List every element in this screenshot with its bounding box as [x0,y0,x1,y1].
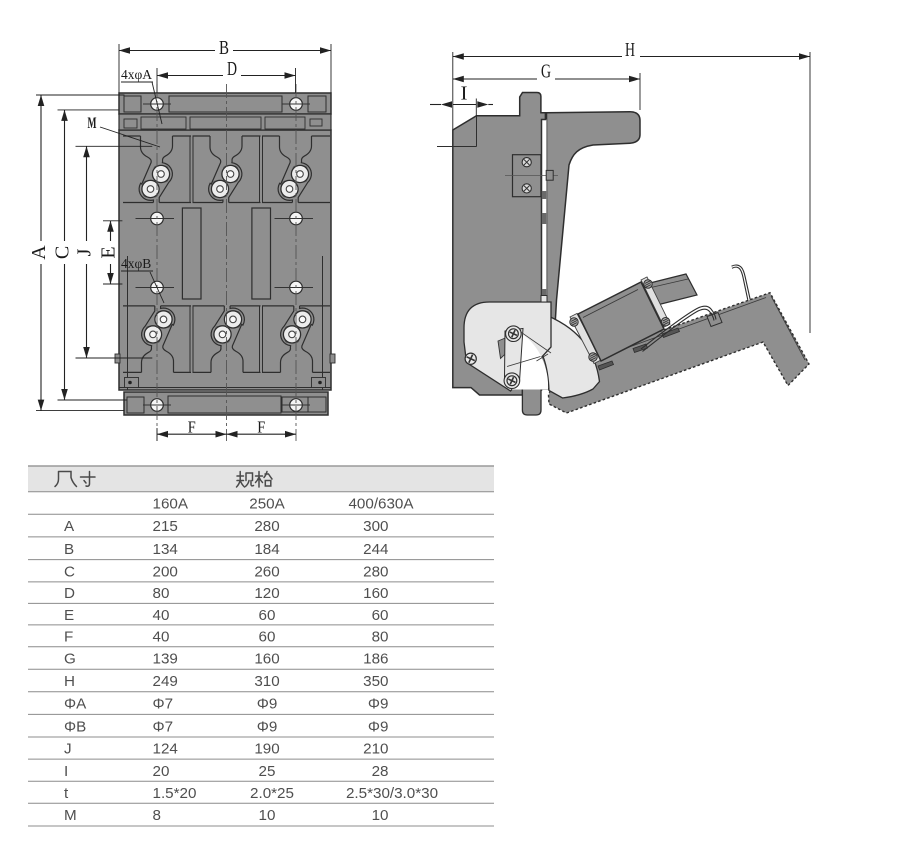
svg-text:40: 40 [153,607,170,624]
svg-text:J: J [74,248,96,256]
svg-text:E: E [98,246,120,258]
svg-text:40: 40 [153,628,170,645]
svg-text:Φ9: Φ9 [368,696,389,713]
svg-text:160A: 160A [153,496,189,513]
svg-text:2.0*25: 2.0*25 [250,785,294,802]
svg-text:139: 139 [153,651,178,668]
svg-text:2.5*30/3.0*30: 2.5*30/3.0*30 [346,785,438,802]
svg-text:80: 80 [372,628,389,645]
svg-text:J: J [64,741,72,758]
svg-text:F: F [188,418,196,437]
svg-text:124: 124 [153,741,178,758]
svg-text:400/630A: 400/630A [348,496,414,513]
svg-text:210: 210 [363,741,388,758]
svg-text:M: M [64,807,77,824]
svg-text:Φ9: Φ9 [257,696,278,713]
svg-text:260: 260 [254,563,279,580]
svg-text:C: C [52,246,74,259]
svg-text:300: 300 [363,518,388,535]
svg-text:A: A [28,245,50,260]
svg-text:1.5*20: 1.5*20 [153,785,197,802]
svg-text:280: 280 [363,563,388,580]
svg-text:Φ9: Φ9 [368,718,389,735]
svg-text:C: C [64,563,75,580]
svg-text:B: B [219,37,229,59]
svg-text:F: F [257,418,265,437]
svg-text:60: 60 [259,628,276,645]
svg-text:190: 190 [254,741,279,758]
svg-text:4xφB: 4xφB [121,256,151,271]
svg-text:80: 80 [153,585,170,602]
svg-text:t: t [64,785,69,802]
svg-text:Φ7: Φ7 [153,718,174,735]
svg-text:160: 160 [254,651,279,668]
svg-text:D: D [64,585,75,602]
svg-text:Φ9: Φ9 [257,718,278,735]
svg-text:ΦB: ΦB [64,718,86,735]
svg-text:D: D [227,58,237,80]
svg-text:280: 280 [254,518,279,535]
svg-text:244: 244 [363,541,388,558]
svg-text:A: A [64,518,75,535]
svg-text:350: 350 [363,673,388,690]
svg-text:10: 10 [259,807,276,824]
svg-text:250A: 250A [249,496,285,513]
svg-text:134: 134 [153,541,178,558]
svg-text:B: B [64,541,74,558]
svg-text:215: 215 [153,518,178,535]
svg-text:25: 25 [259,763,276,780]
svg-text:249: 249 [153,673,178,690]
svg-text:10: 10 [372,807,389,824]
svg-text:H: H [64,673,75,690]
svg-text:186: 186 [363,651,388,668]
svg-text:E: E [64,607,74,624]
svg-text:20: 20 [153,763,170,780]
svg-text:G: G [541,61,551,83]
svg-text:8: 8 [153,807,161,824]
svg-text:28: 28 [372,763,389,780]
svg-text:200: 200 [153,563,178,580]
svg-text:M: M [88,115,97,132]
svg-text:4xφA: 4xφA [121,67,152,82]
svg-text:310: 310 [254,673,279,690]
svg-text:I: I [64,763,68,780]
svg-text:ΦA: ΦA [64,696,87,713]
svg-text:H: H [625,39,635,61]
svg-text:120: 120 [254,585,279,602]
svg-text:Φ7: Φ7 [153,696,174,713]
svg-text:G: G [64,651,76,668]
svg-text:I: I [461,83,468,105]
svg-text:F: F [64,628,73,645]
svg-text:60: 60 [372,607,389,624]
svg-text:184: 184 [254,541,279,558]
svg-text:160: 160 [363,585,388,602]
svg-text:60: 60 [259,607,276,624]
